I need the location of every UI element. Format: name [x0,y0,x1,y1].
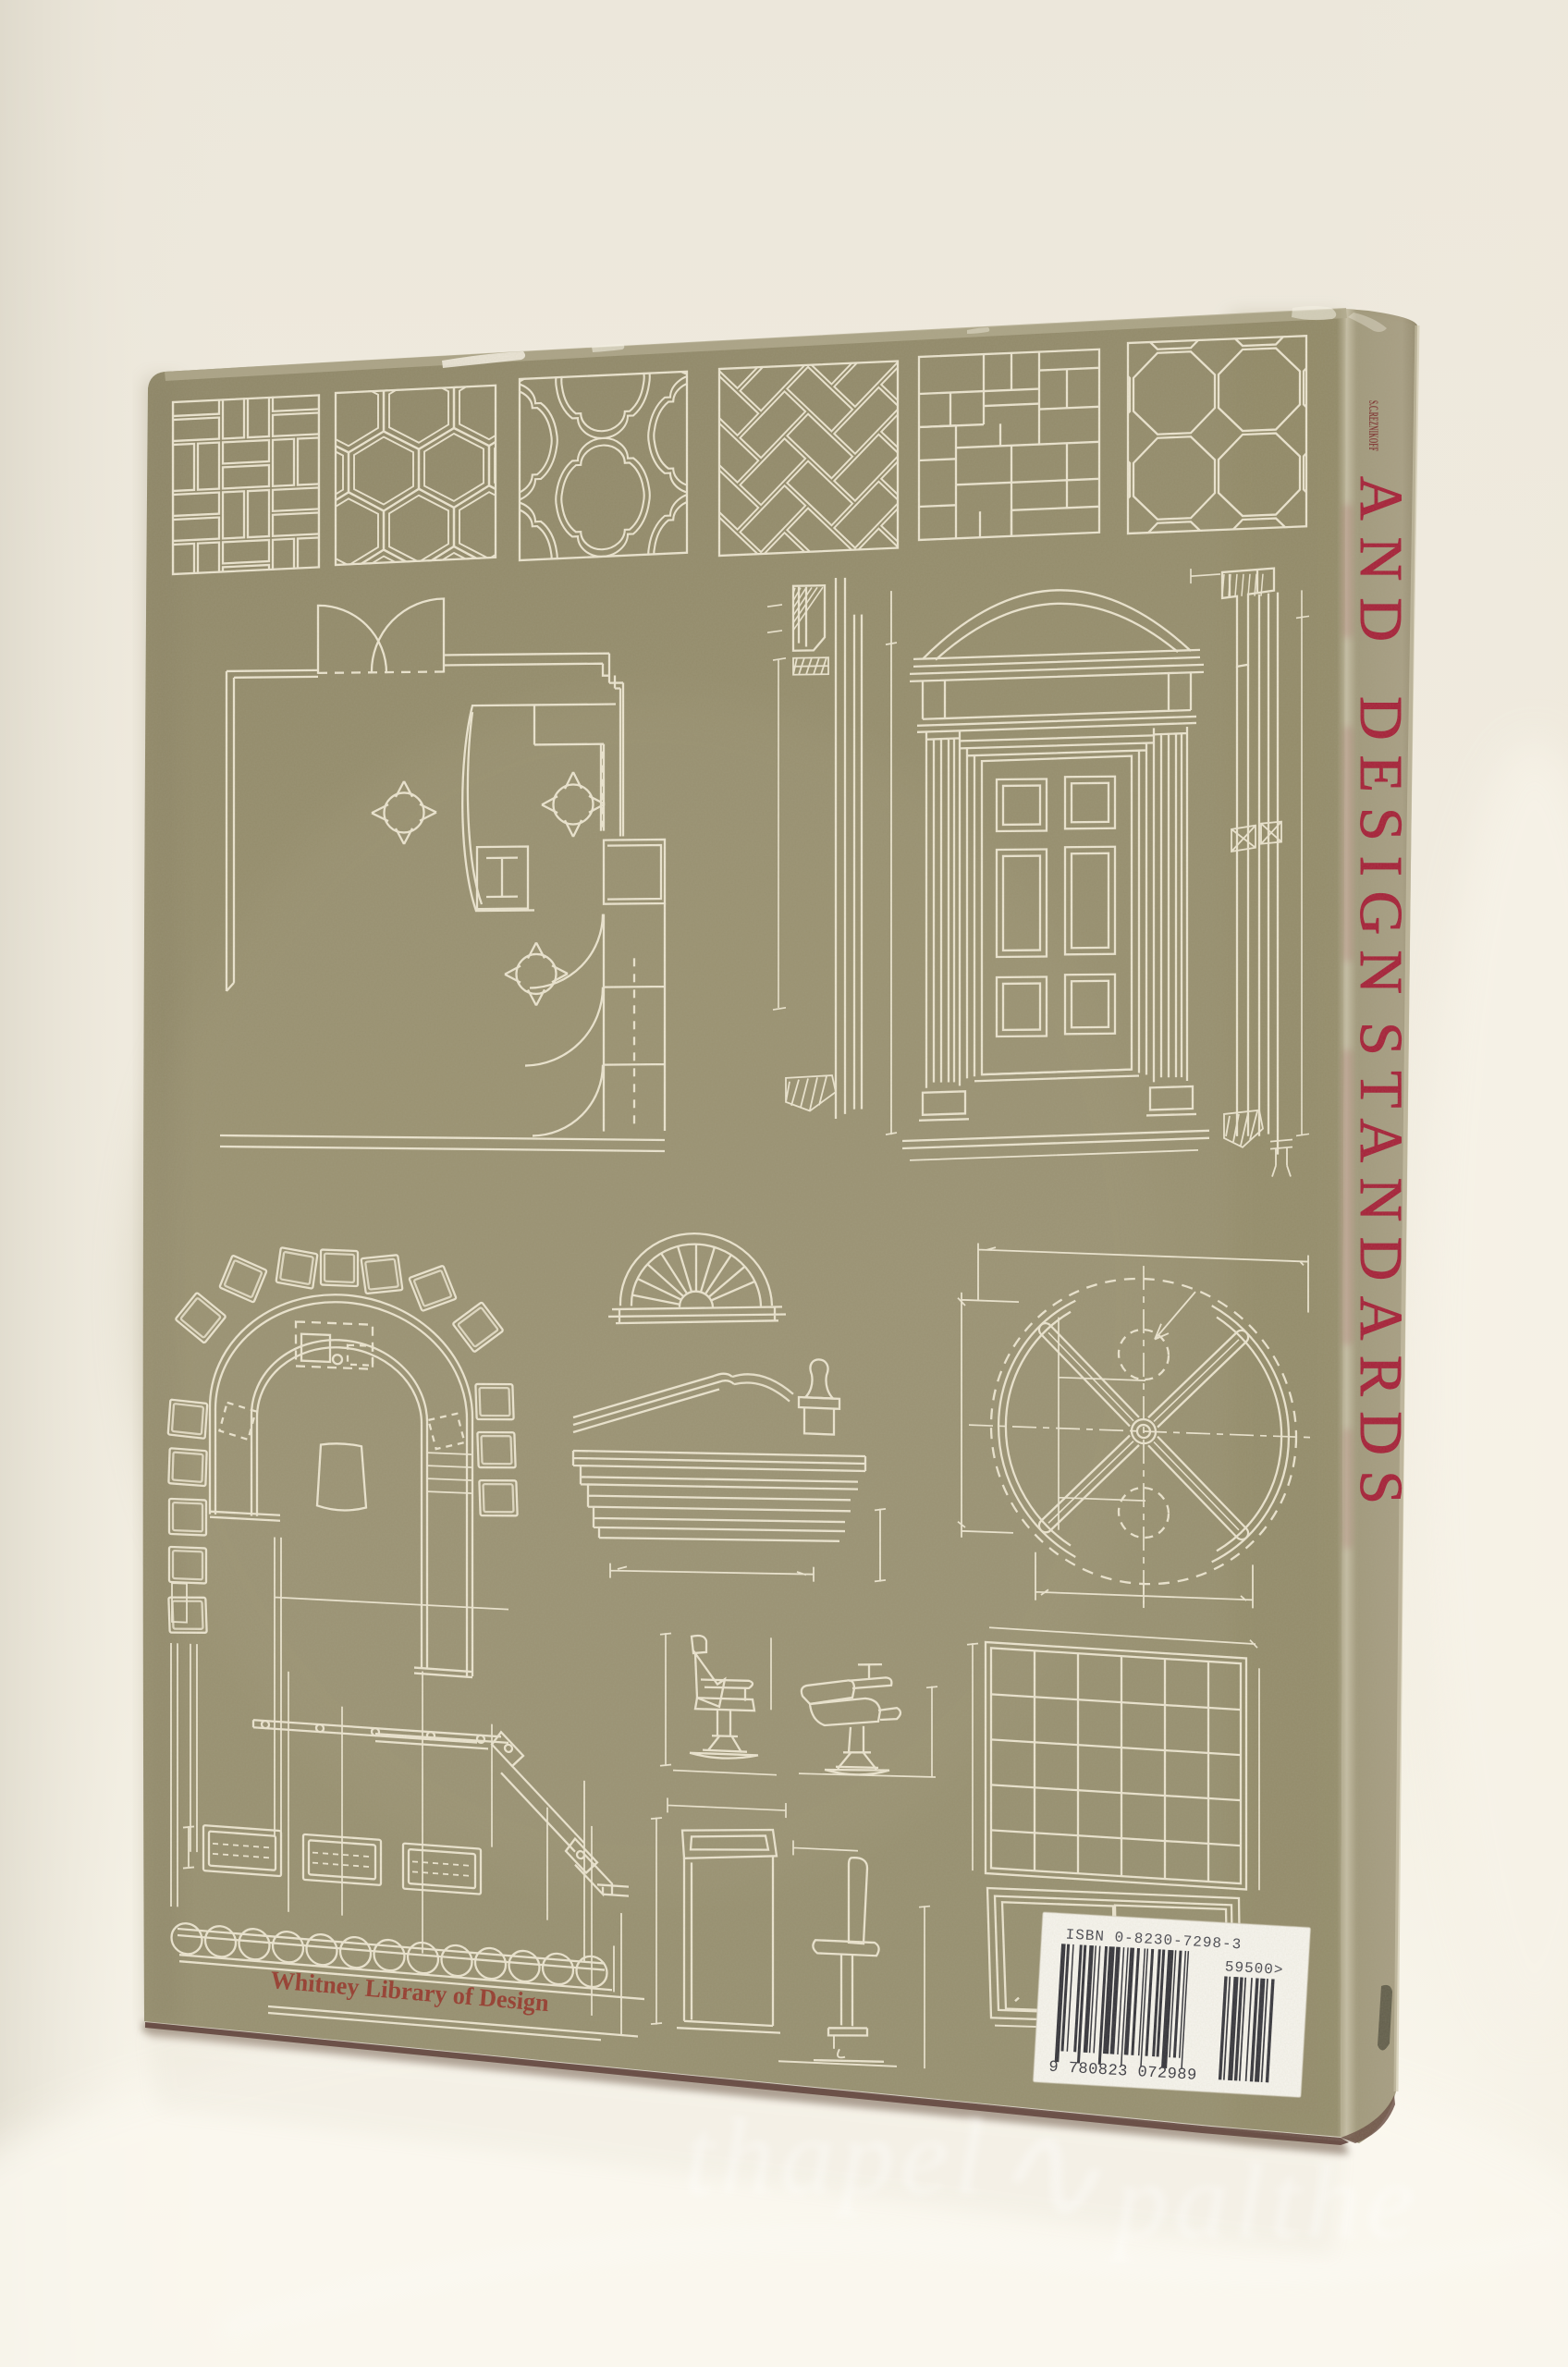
svg-text:palthe: palthe [1108,2140,1420,2262]
svg-text:∿: ∿ [987,2096,1104,2250]
svg-text:thapel: thapel [684,2096,990,2217]
